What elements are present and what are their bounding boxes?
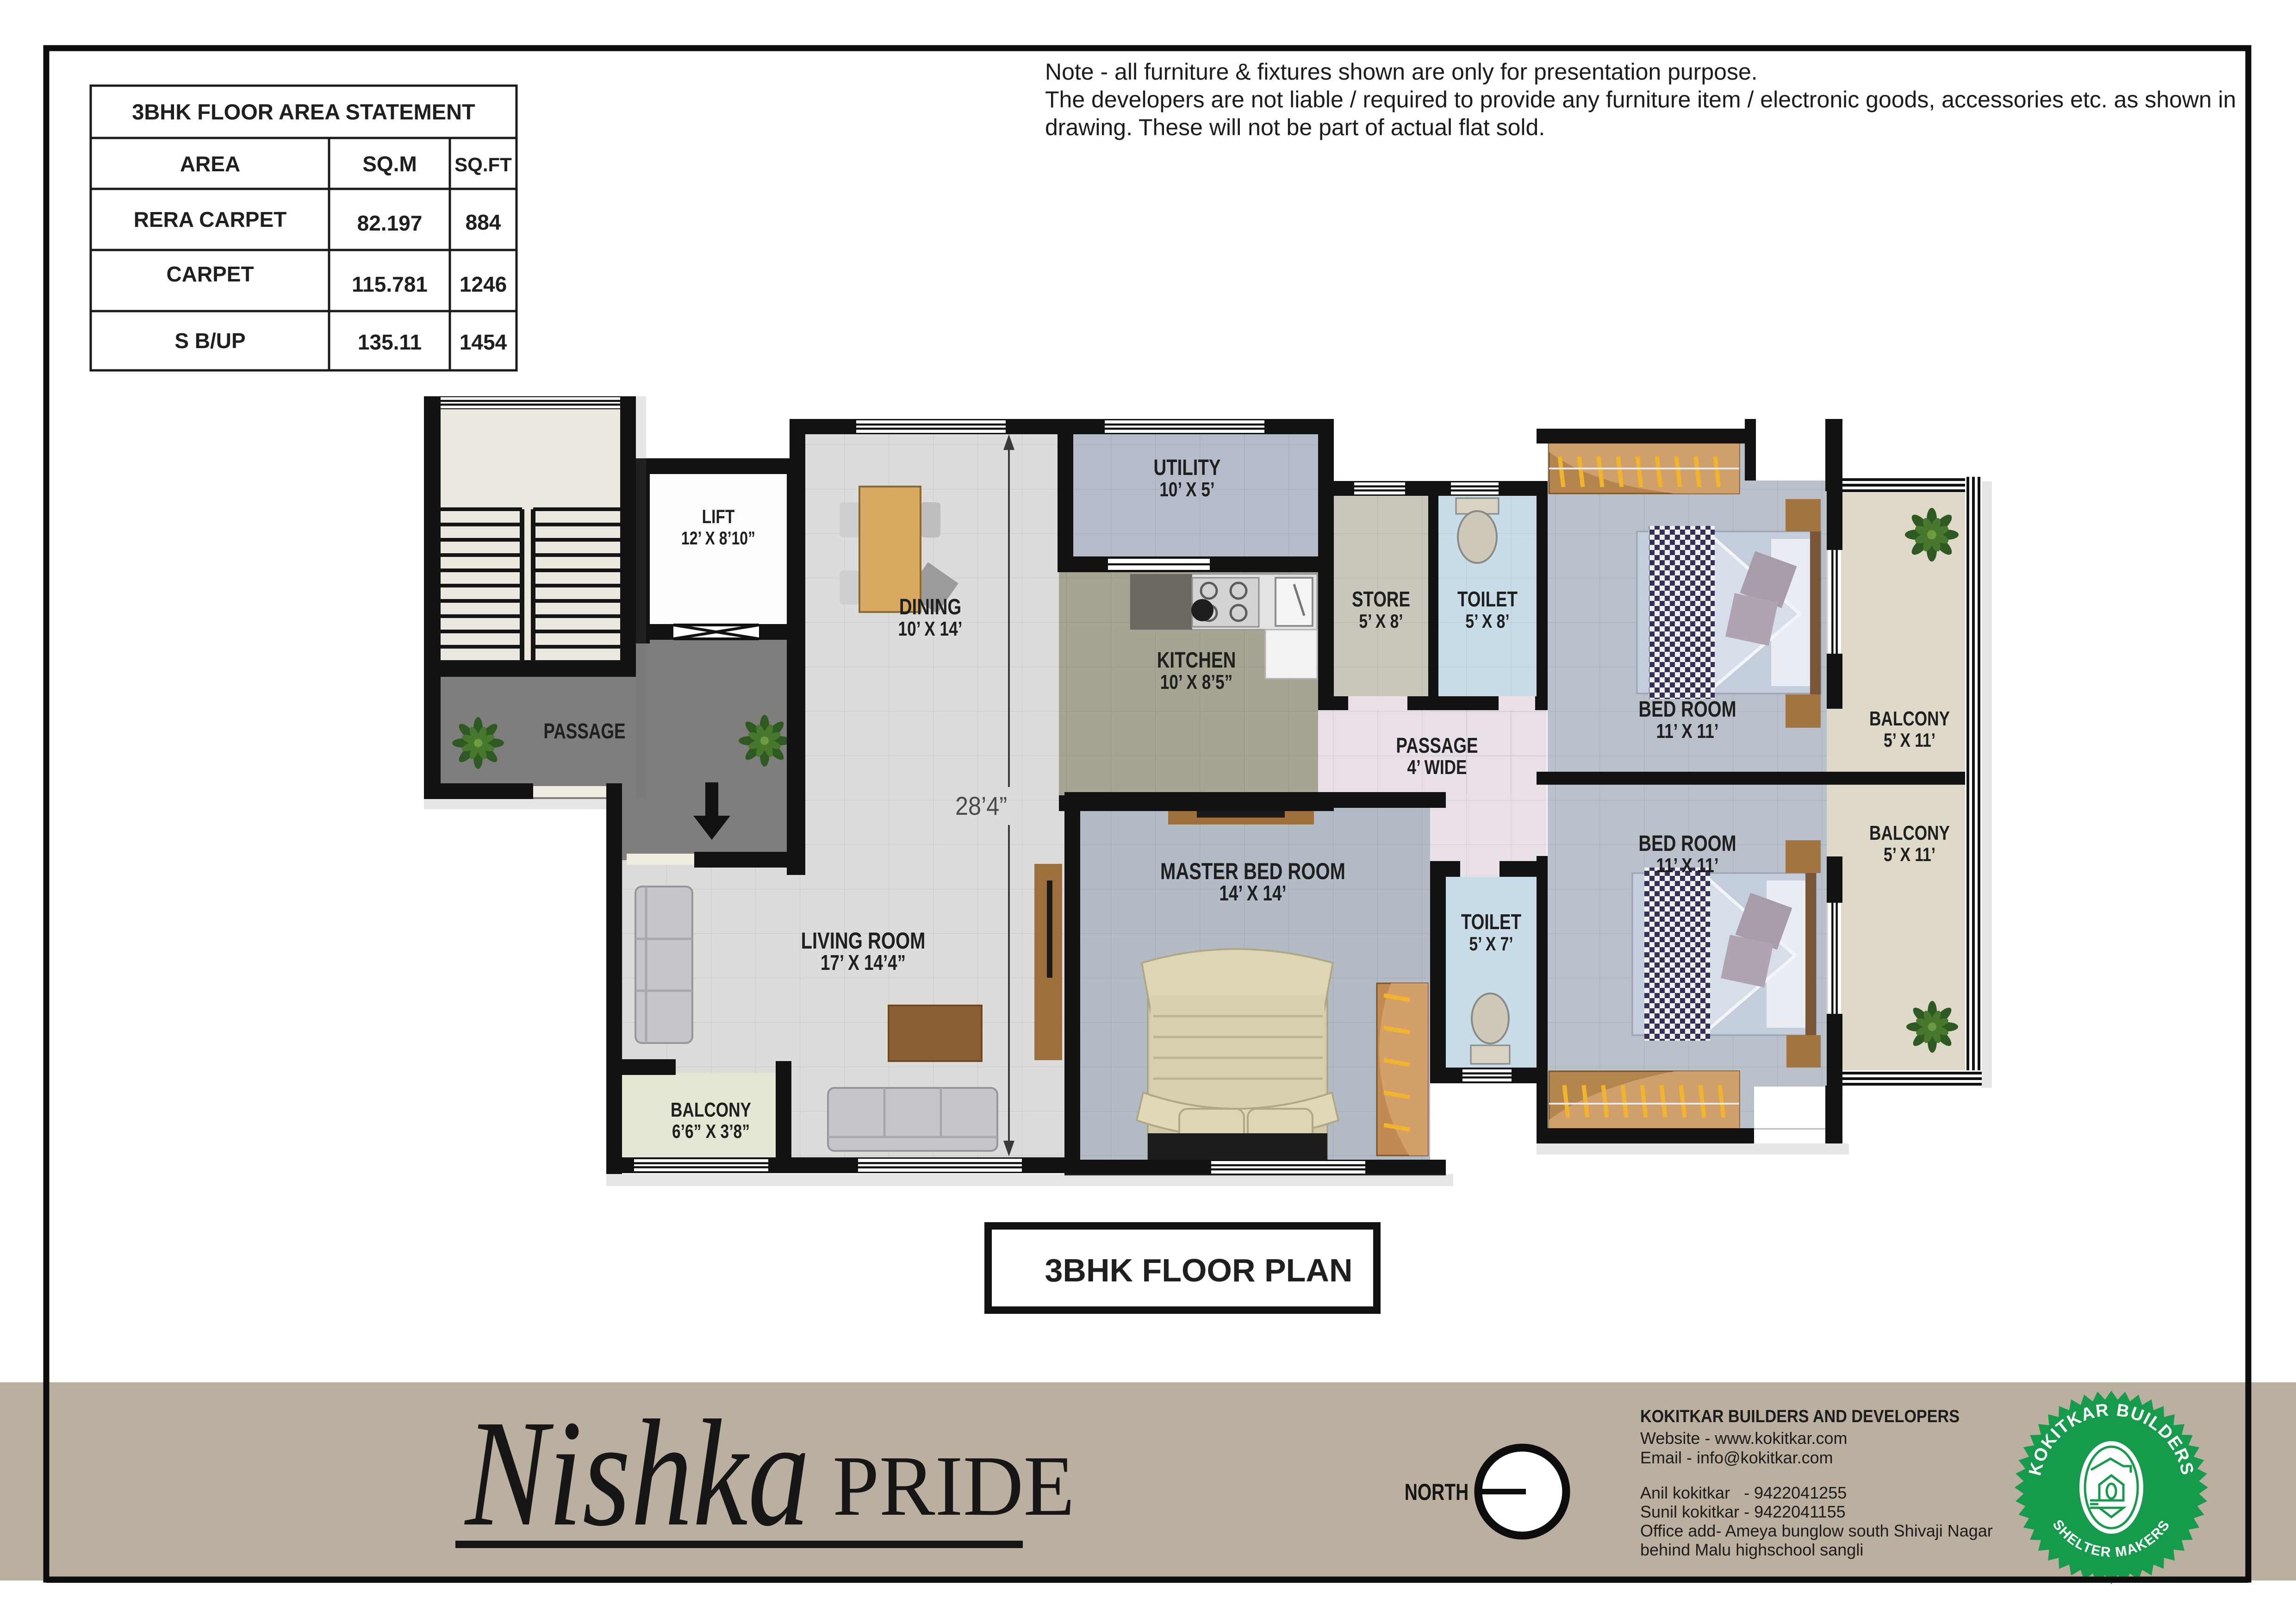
svg-text:Anil kokitkar - 9422041255: Anil kokitkar - 9422041255 [1640,1483,1847,1502]
svg-text:1454: 1454 [460,330,507,354]
svg-text:S B/UP: S B/UP [174,329,245,353]
svg-text:Website - www.kokitkar.com: Website - www.kokitkar.com [1640,1429,1847,1448]
svg-text:BALCONY: BALCONY [671,1099,751,1121]
svg-text:884: 884 [466,210,501,234]
svg-text:CARPET: CARPET [166,262,254,286]
svg-text:Office add- Ameya bunglow sout: Office add- Ameya bunglow south Shivaji … [1640,1521,1993,1540]
svg-text:Nishka: Nishka [463,1389,810,1558]
svg-text:BALCONY: BALCONY [1869,707,1950,730]
svg-text:3BHK FLOOR AREA STATEMENT: 3BHK FLOOR AREA STATEMENT [132,100,475,124]
svg-text:1246: 1246 [460,272,507,296]
svg-text:82.197: 82.197 [357,211,423,235]
svg-text:PASSAGE: PASSAGE [543,719,625,743]
svg-text:AREA: AREA [180,152,240,176]
svg-text:10’ X 8’5”: 10’ X 8’5” [1160,671,1233,693]
svg-text:5’ X 8’: 5’ X 8’ [1359,611,1403,632]
svg-text:10’ X 5’: 10’ X 5’ [1159,478,1214,501]
svg-text:5’ X 7’: 5’ X 7’ [1469,934,1513,955]
svg-text:11’ X 11’: 11’ X 11’ [1656,854,1718,877]
svg-text:The developers are not liable: The developers are not liable / required… [1045,87,2236,112]
svg-text:BED ROOM: BED ROOM [1638,831,1736,856]
svg-text:5’ X 11’: 5’ X 11’ [1884,844,1935,866]
svg-text:5’ X 8’: 5’ X 8’ [1465,611,1509,632]
svg-text:STORE: STORE [1352,587,1410,611]
svg-text:135.11: 135.11 [358,330,422,354]
svg-text:10’ X 14’: 10’ X 14’ [898,618,963,640]
svg-text:4’ WIDE: 4’ WIDE [1407,756,1467,779]
svg-text:PRIDE: PRIDE [833,1438,1075,1534]
svg-text:3BHK FLOOR PLAN: 3BHK FLOOR PLAN [1045,1252,1353,1288]
svg-text:RERA CARPET: RERA CARPET [134,207,287,231]
svg-text:Note - all furniture & fixture: Note - all furniture & fixtures shown ar… [1045,59,1758,85]
svg-text:KITCHEN: KITCHEN [1157,648,1236,673]
svg-text:TOILET: TOILET [1457,587,1518,611]
svg-text:behind Malu highschool sangli: behind Malu highschool sangli [1640,1540,1863,1559]
svg-text:DINING: DINING [899,595,961,619]
svg-text:6’6” X 3’8”: 6’6” X 3’8” [672,1121,750,1143]
svg-text:17’ X 14’4”: 17’ X 14’4” [821,950,906,974]
svg-text:11’ X 11’: 11’ X 11’ [1656,720,1718,743]
svg-text:PASSAGE: PASSAGE [1396,733,1478,757]
svg-text:KOKITKAR BUILDERS AND DEVELOPE: KOKITKAR BUILDERS AND DEVELOPERS [1640,1407,1960,1426]
svg-text:28’4”: 28’4” [955,792,1007,821]
svg-text:TOILET: TOILET [1461,910,1521,934]
svg-text:SQ.FT: SQ.FT [454,154,512,175]
svg-text:Sunil kokitkar - 9422041155: Sunil kokitkar - 9422041155 [1640,1502,1846,1521]
svg-text:NORTH: NORTH [1405,1479,1469,1505]
svg-text:115.781: 115.781 [352,272,428,296]
svg-text:14’ X 14’: 14’ X 14’ [1219,881,1286,905]
svg-text:LIVING ROOM: LIVING ROOM [801,928,926,954]
svg-text:UTILITY: UTILITY [1153,456,1220,480]
svg-text:drawing. These will not be par: drawing. These will not be part of actua… [1045,114,1545,140]
svg-text:Email - info@kokitkar.com: Email - info@kokitkar.com [1640,1448,1833,1467]
svg-text:MASTER BED ROOM: MASTER BED ROOM [1160,858,1345,884]
svg-text:LIFT: LIFT [702,506,735,528]
svg-text:5’ X 11’: 5’ X 11’ [1884,730,1935,751]
svg-text:SQ.M: SQ.M [362,152,417,176]
svg-text:BED ROOM: BED ROOM [1638,697,1736,722]
svg-text:BALCONY: BALCONY [1869,822,1950,844]
svg-text:12’ X 8’10”: 12’ X 8’10” [681,528,755,549]
